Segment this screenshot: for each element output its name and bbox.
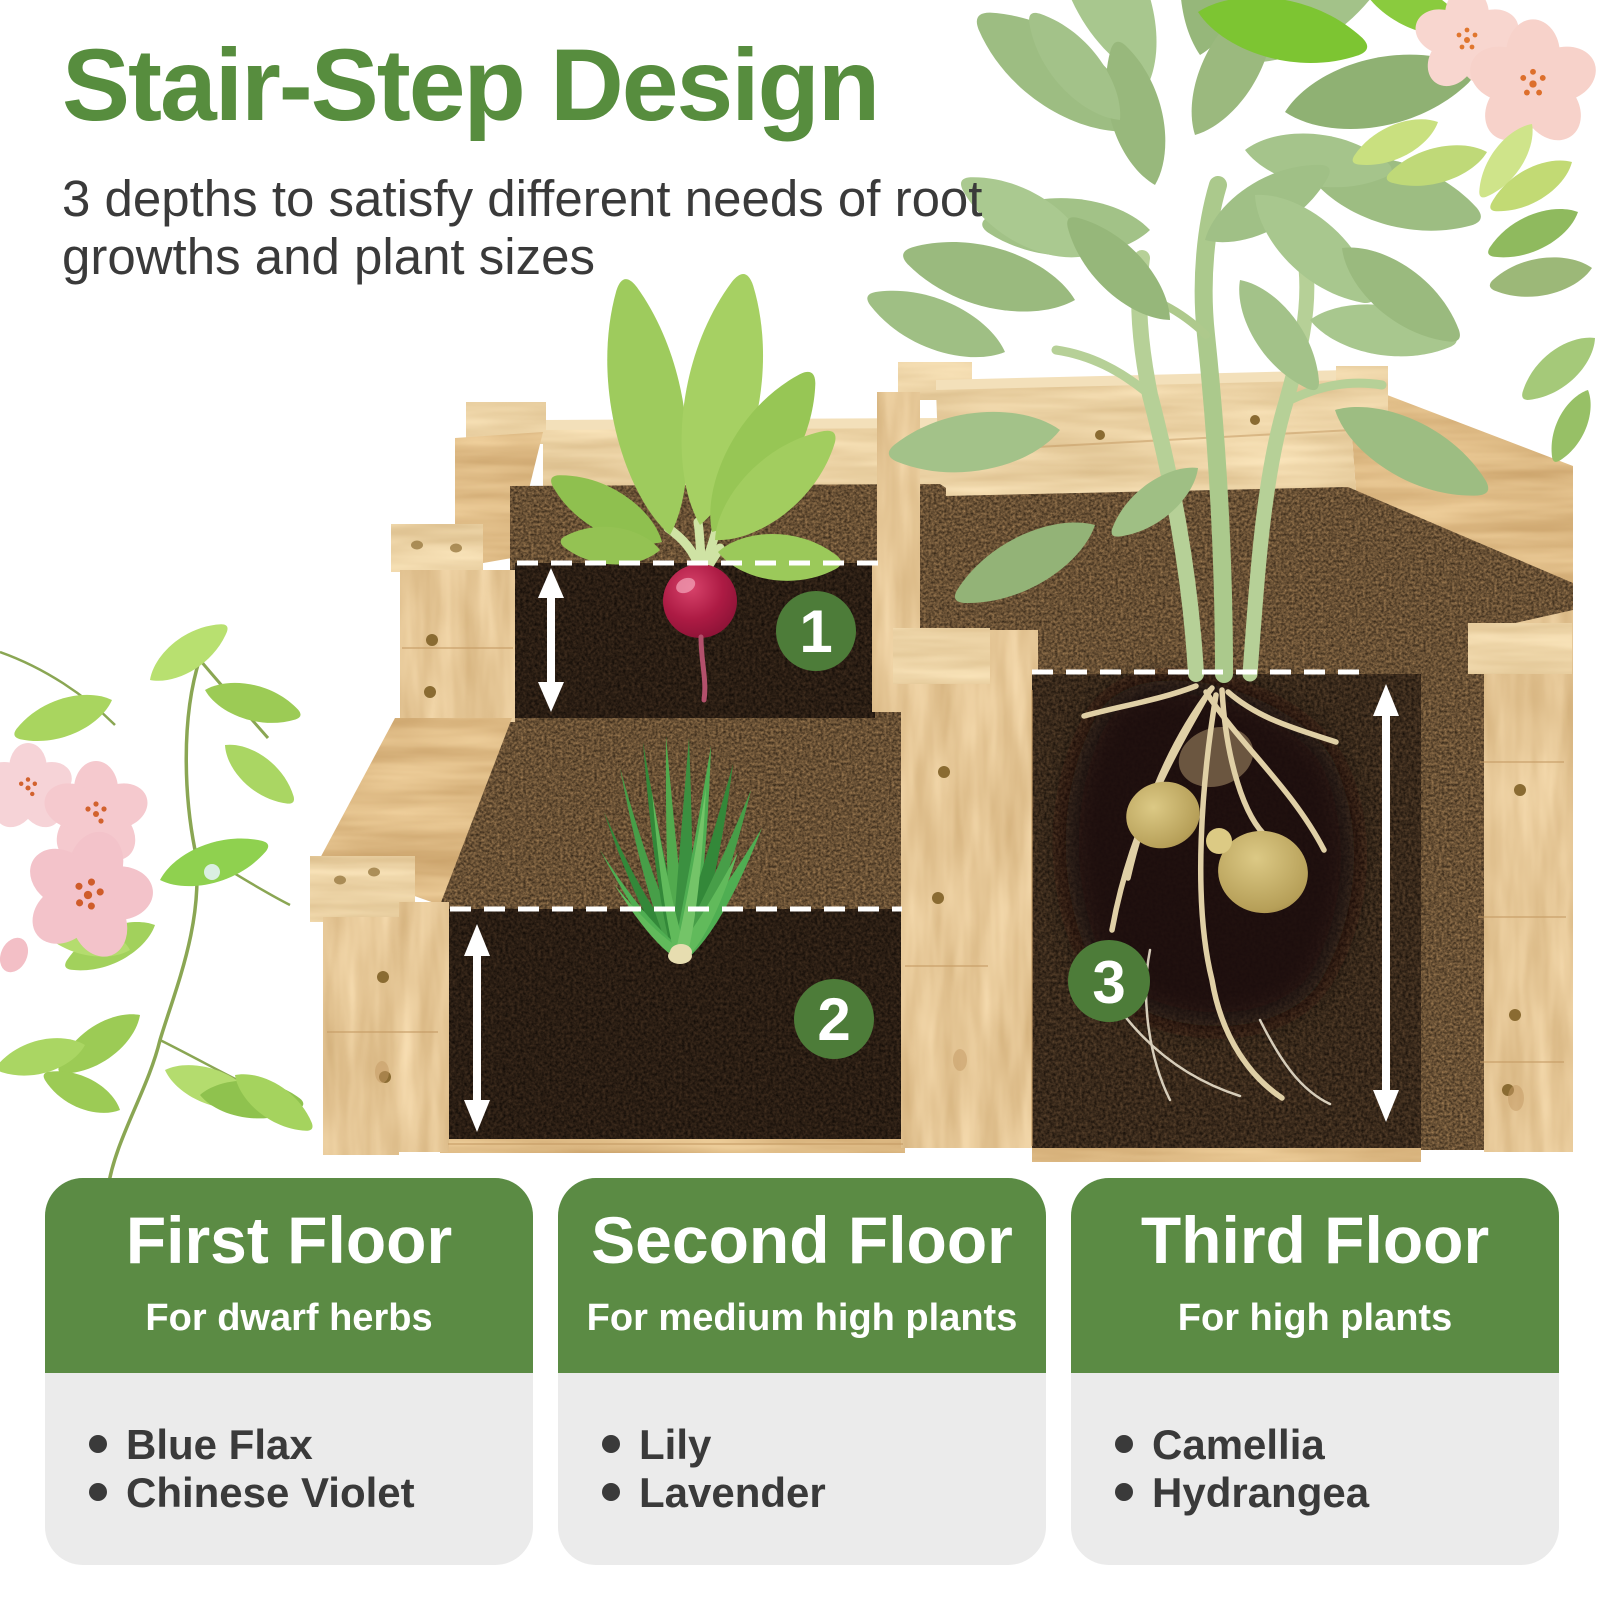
- svg-text:For medium high plants: For medium high plants: [587, 1297, 1018, 1339]
- svg-text:Lily: Lily: [639, 1421, 712, 1468]
- svg-text:Second Floor: Second Floor: [591, 1203, 1013, 1277]
- svg-text:2: 2: [817, 986, 850, 1053]
- svg-text:Camellia: Camellia: [1152, 1421, 1325, 1468]
- svg-text:First Floor: First Floor: [126, 1203, 452, 1277]
- svg-text:Stair-Step Design: Stair-Step Design: [62, 28, 878, 142]
- svg-text:3 depths to satisfy different: 3 depths to satisfy different needs of r…: [62, 170, 982, 227]
- svg-text:Lavender: Lavender: [639, 1469, 826, 1516]
- svg-text:growths and plant sizes: growths and plant sizes: [62, 228, 595, 285]
- svg-text:3: 3: [1092, 949, 1125, 1016]
- svg-text:Blue Flax: Blue Flax: [126, 1421, 313, 1468]
- svg-text:Third Floor: Third Floor: [1141, 1203, 1489, 1277]
- svg-text:For dwarf herbs: For dwarf herbs: [145, 1297, 432, 1339]
- svg-text:Hydrangea: Hydrangea: [1152, 1469, 1370, 1516]
- svg-text:For high plants: For high plants: [1178, 1297, 1452, 1339]
- svg-text:Chinese Violet: Chinese Violet: [126, 1469, 415, 1516]
- svg-text:1: 1: [799, 598, 832, 665]
